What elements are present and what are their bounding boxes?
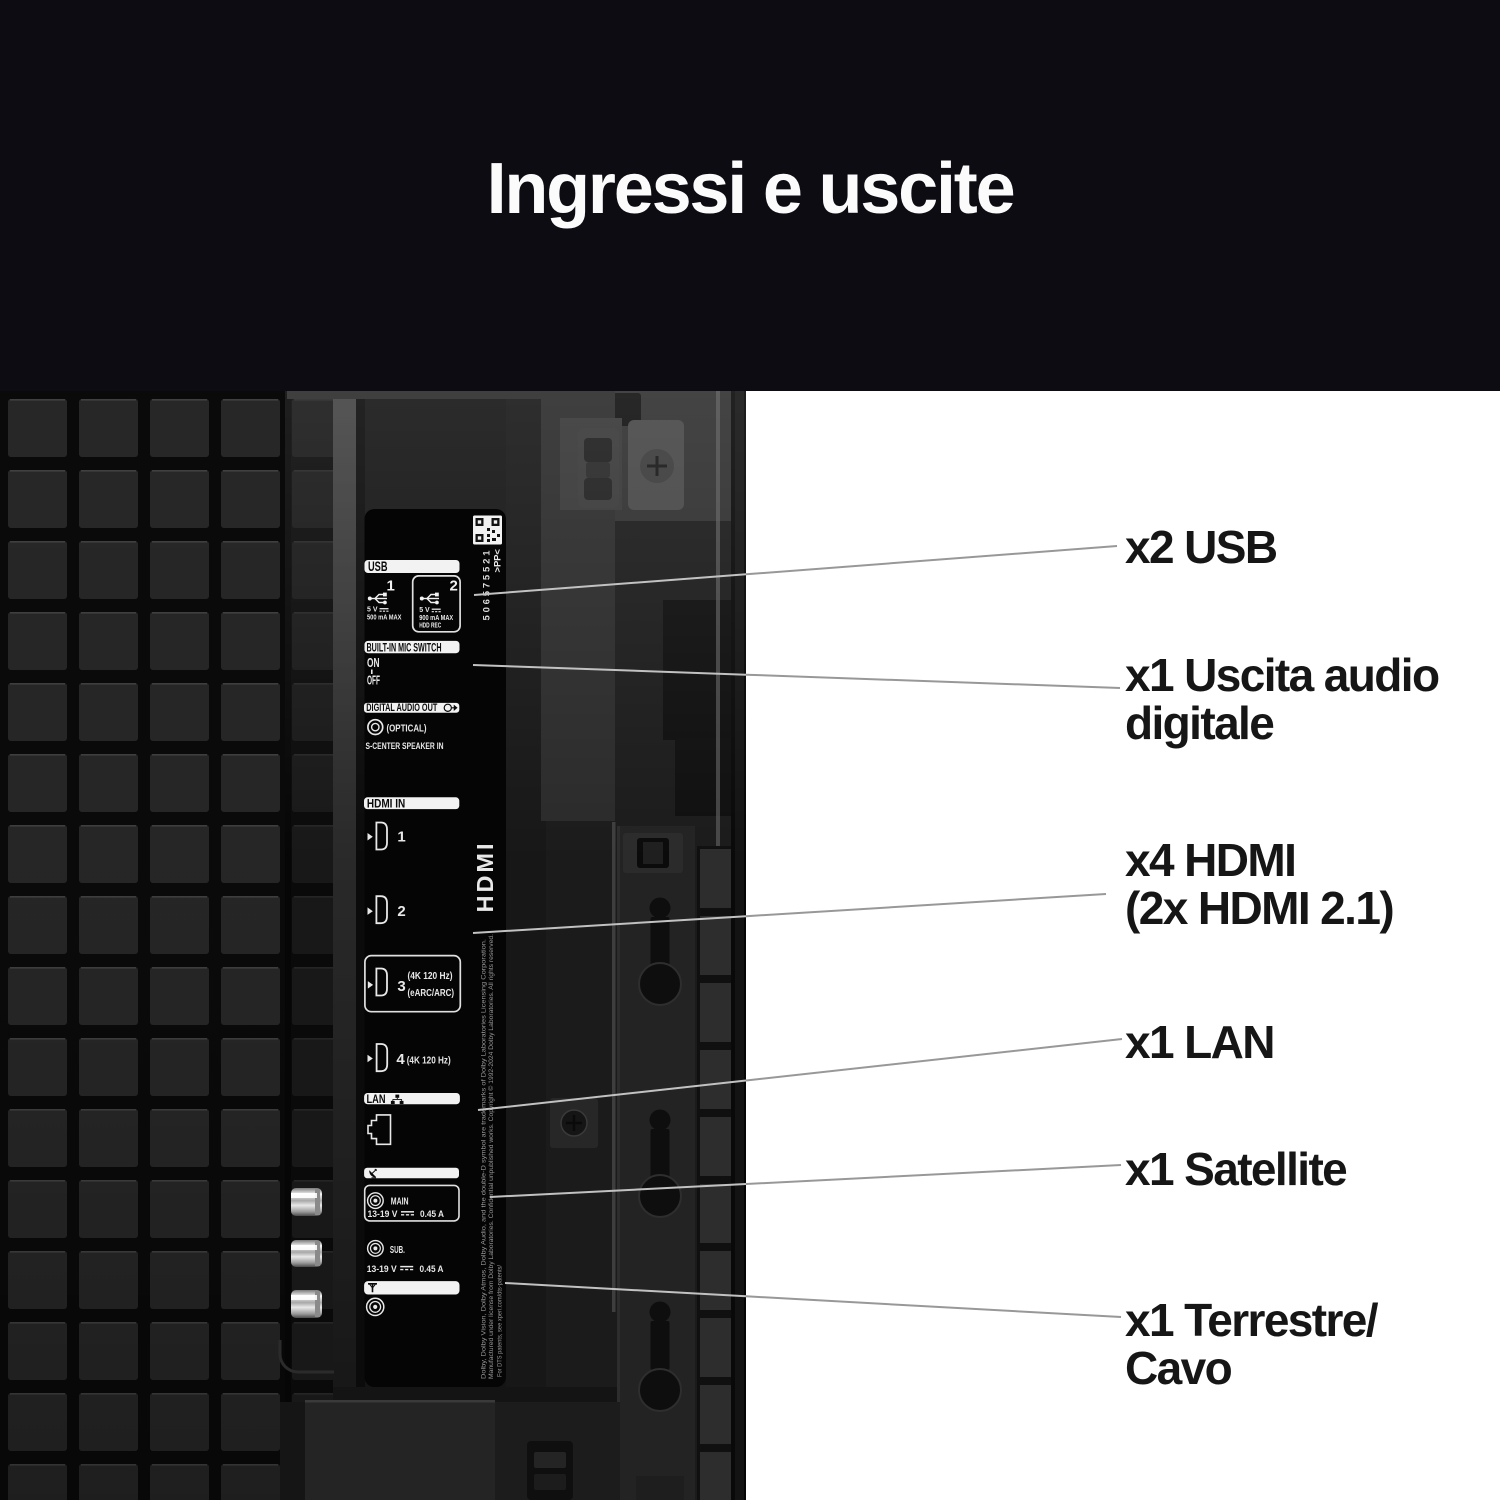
svg-text:DIGITAL AUDIO OUT: DIGITAL AUDIO OUT <box>366 702 437 714</box>
svg-text:BUILT-IN MIC SWITCH: BUILT-IN MIC SWITCH <box>367 642 442 654</box>
svg-text:(OPTICAL): (OPTICAL) <box>387 723 427 735</box>
svg-text:>PP<: >PP< <box>493 549 504 573</box>
svg-text:(4K 120 Hz): (4K 120 Hz) <box>408 971 453 982</box>
svg-text:LAN: LAN <box>367 1094 386 1106</box>
svg-text:MAIN: MAIN <box>391 1195 409 1207</box>
svg-text:HDMI: HDMI <box>472 844 498 913</box>
svg-text:13-19 V: 13-19 V <box>368 1209 399 1220</box>
svg-text:SUB.: SUB. <box>390 1244 405 1256</box>
svg-text:(eARC/ARC): (eARC/ARC) <box>408 988 455 999</box>
svg-text:1: 1 <box>387 578 395 595</box>
svg-text:1: 1 <box>397 829 405 846</box>
svg-text:Dolby, Dolby Vision, Dolby Atm: Dolby, Dolby Vision, Dolby Atmos, Dolby … <box>481 939 488 1379</box>
svg-text:506575521: 506575521 <box>482 550 493 621</box>
svg-text:4: 4 <box>396 1051 405 1068</box>
svg-text:ON: ON <box>367 655 380 670</box>
svg-text:HDMI IN: HDMI IN <box>367 796 405 810</box>
svg-text:0.45 A: 0.45 A <box>420 1209 444 1220</box>
svg-text:Manufactured under license fro: Manufactured under license from Dolby La… <box>488 934 495 1379</box>
svg-text:2: 2 <box>450 578 458 595</box>
svg-text:For DTS patents, see xperi.com: For DTS patents, see xperi.com/dts-paten… <box>497 1265 504 1377</box>
svg-text:USB: USB <box>368 559 388 574</box>
svg-text:S-CENTER SPEAKER IN: S-CENTER SPEAKER IN <box>366 741 444 751</box>
svg-text:13-19 V: 13-19 V <box>367 1264 398 1275</box>
svg-text:500 mA MAX: 500 mA MAX <box>367 613 402 622</box>
svg-text:OFF: OFF <box>367 672 380 687</box>
svg-text:0.45 A: 0.45 A <box>420 1264 444 1275</box>
svg-text:2: 2 <box>397 903 405 920</box>
svg-text:(4K 120 Hz): (4K 120 Hz) <box>407 1056 451 1067</box>
svg-text:HDD REC: HDD REC <box>419 621 441 630</box>
svg-text:3: 3 <box>397 978 405 995</box>
